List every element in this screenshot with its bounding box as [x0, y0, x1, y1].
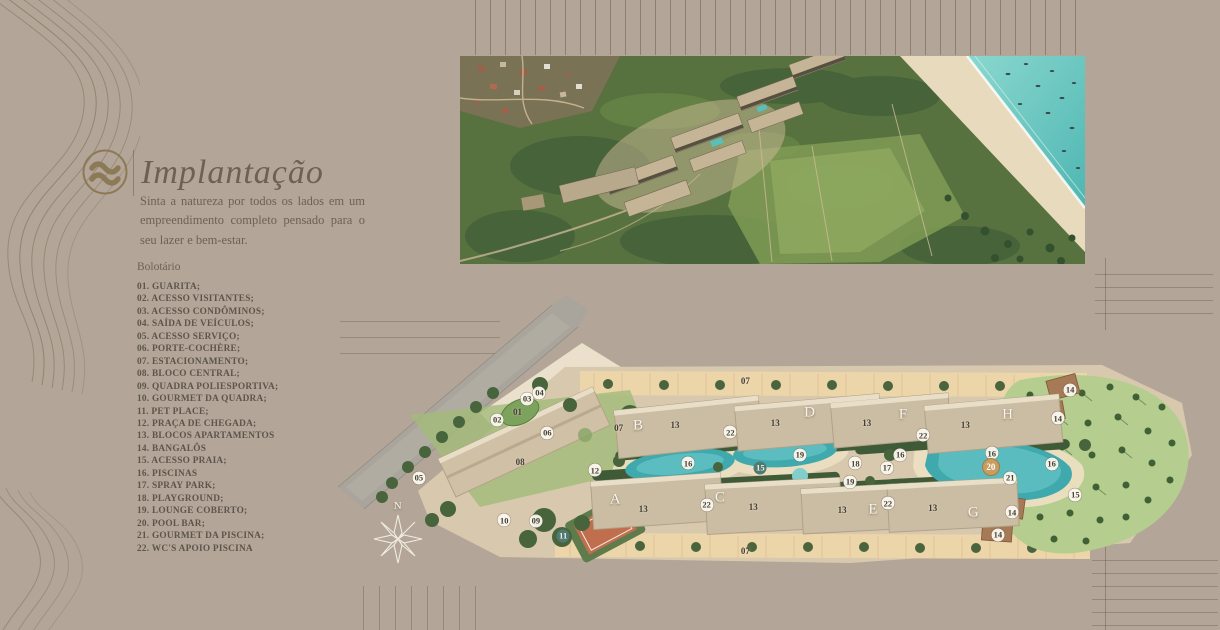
plan-marker: 16 — [985, 447, 998, 460]
plan-marker: 13 — [749, 502, 758, 512]
plan-marker: 15 — [754, 461, 767, 474]
legend-item: 11. PET PLACE; — [137, 406, 278, 418]
plan-marker: 13 — [928, 503, 937, 513]
legend-item: 12. PRAÇA DE CHEGADA; — [137, 418, 278, 430]
plan-marker: 13 — [771, 418, 780, 428]
legend-list: 01. GUARITA;02. ACESSO VISITANTES;03. AC… — [137, 281, 278, 555]
aerial-photo — [460, 56, 1085, 264]
legend-item: 06. PORTE-COCHÈRE; — [137, 343, 278, 355]
legend-item: 02. ACESSO VISITANTES; — [137, 293, 278, 305]
plan-marker: 06 — [541, 426, 554, 439]
plan-marker: 09 — [529, 514, 542, 527]
plan-marker: 02 — [491, 413, 504, 426]
plan-marker: 17 — [881, 461, 894, 474]
plan-marker: 16 — [1045, 457, 1058, 470]
legend-item: 15. ACESSO PRAIA; — [137, 455, 278, 467]
waves-logo-icon — [82, 149, 128, 195]
legend-item: 22. WC'S APOIO PISCINA — [137, 543, 278, 555]
legend-heading: Bolotário — [137, 261, 180, 273]
title-divider — [133, 150, 134, 196]
plan-marker: 07 — [741, 546, 750, 556]
legend-item: 04. SAÍDA DE VEÍCULOS; — [137, 318, 278, 330]
plan-marker: 07 — [614, 423, 623, 433]
legend-item: 07. ESTACIONAMENTO; — [137, 356, 278, 368]
intro-text: Sinta a natureza por todos os lados em u… — [140, 192, 365, 250]
plan-markers: 0102030405060707070809101112131313131313… — [330, 295, 1210, 605]
plan-marker: 13 — [639, 504, 648, 514]
plan-marker: 22 — [724, 426, 737, 439]
plan-marker: 16 — [894, 448, 907, 461]
plan-marker: 10 — [498, 514, 511, 527]
plan-marker: 14 — [991, 528, 1004, 541]
legend-item: 21. GOURMET DA PISCINA; — [137, 530, 278, 542]
plan-marker: 05 — [412, 471, 425, 484]
legend-item: 17. SPRAY PARK; — [137, 480, 278, 492]
legend-item: 13. BLOCOS APARTAMENTOS — [137, 430, 278, 442]
page-title: Implantação — [141, 150, 324, 196]
plan-marker: 03 — [521, 392, 534, 405]
compass-rose: N — [372, 500, 424, 572]
plan-marker: 12 — [588, 464, 601, 477]
plan-marker: 15 — [1069, 488, 1082, 501]
plan-marker: 19 — [793, 448, 806, 461]
legend-item: 18. PLAYGROUND; — [137, 493, 278, 505]
site-plan: 0102030405060707070809101112131313131313… — [330, 295, 1210, 605]
compass-rose-icon — [372, 513, 424, 565]
legend-item: 08. BLOCO CENTRAL; — [137, 368, 278, 380]
legend-item: 05. ACESSO SERVIÇO; — [137, 331, 278, 343]
north-label: N — [372, 500, 424, 512]
plan-marker: 18 — [849, 457, 862, 470]
plan-marker: 11 — [557, 529, 570, 542]
plan-marker: 13 — [838, 505, 847, 515]
legend-item: 20. POOL BAR; — [137, 518, 278, 530]
legend-item: 09. QUADRA POLIESPORTIVA; — [137, 381, 278, 393]
plan-marker: 22 — [700, 498, 713, 511]
plan-marker: 21 — [1004, 471, 1017, 484]
plan-marker: 14 — [1051, 412, 1064, 425]
plan-marker: 01 — [513, 407, 522, 417]
plan-marker: 14 — [1006, 506, 1019, 519]
plan-marker: 22 — [917, 429, 930, 442]
brochure-page: Implantação Sinta a natureza por todos o… — [0, 0, 1220, 630]
stripe-pattern-top — [461, 0, 1085, 55]
plan-marker: 14 — [1064, 383, 1077, 396]
plan-marker: 16 — [682, 457, 695, 470]
plan-marker: 08 — [516, 457, 525, 467]
plan-marker: 19 — [844, 475, 857, 488]
plan-marker: 20 — [983, 459, 999, 475]
plan-marker: 04 — [533, 386, 546, 399]
legend-item: 19. LOUNGE COBERTO; — [137, 505, 278, 517]
legend-item: 14. BANGALÔS — [137, 443, 278, 455]
plan-marker: 22 — [881, 497, 894, 510]
legend-item: 16. PISCINAS — [137, 468, 278, 480]
plan-marker: 13 — [961, 420, 970, 430]
plan-marker: 13 — [670, 420, 679, 430]
legend-item: 10. GOURMET DA QUADRA; — [137, 393, 278, 405]
plan-marker: 07 — [741, 376, 750, 386]
legend-item: 03. ACESSO CONDÔMINOS; — [137, 306, 278, 318]
plan-marker: 13 — [862, 418, 871, 428]
legend-item: 01. GUARITA; — [137, 281, 278, 293]
